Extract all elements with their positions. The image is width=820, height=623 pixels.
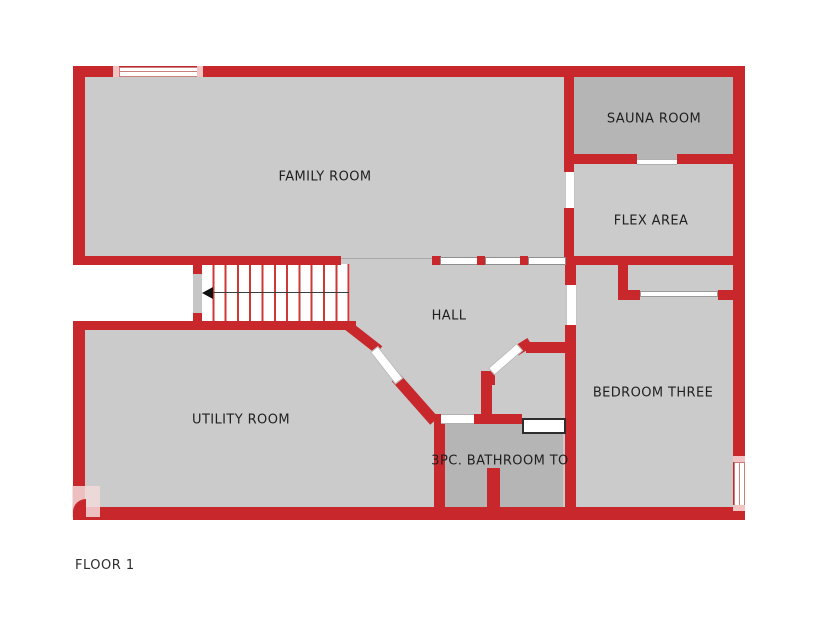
closet-rod-line <box>640 291 718 297</box>
door-family-flex <box>565 172 575 208</box>
railing-bar-1 <box>440 257 479 265</box>
door-bathroom <box>441 414 474 424</box>
stairs-direction-arrow-icon <box>202 287 213 299</box>
wall-bathroom-stub <box>487 468 500 508</box>
wall-closet-stub-right <box>718 290 733 300</box>
room-label-utility-room: UTILITY ROOM <box>192 413 290 428</box>
wall-wc-top <box>526 342 565 353</box>
floor-title: FLOOR 1 <box>75 558 135 573</box>
wall-bedroom-left-upper <box>565 256 576 285</box>
wall-exterior-bottom <box>73 507 745 520</box>
wall-flex-bottom <box>564 256 733 265</box>
window-top-cap-right <box>197 66 203 77</box>
door-bedroom <box>566 285 577 325</box>
room-label-family-room: FAMILY ROOM <box>279 170 372 185</box>
wall-bedroom-left-lower <box>565 325 576 508</box>
wall-wc-left <box>481 373 492 418</box>
room-label-hall: HALL <box>432 309 467 324</box>
room-label-flex-area: FLEX AREA <box>614 214 689 229</box>
window-right-cap-bottom <box>733 505 745 511</box>
wall-closet-partition <box>618 265 628 300</box>
wall-utility-top <box>73 321 356 330</box>
wall-exterior-left-upper <box>73 66 85 265</box>
window-familyroom-top <box>119 67 199 77</box>
hall-family-boundary-line <box>341 258 432 259</box>
stair-direction-line <box>211 292 349 293</box>
wall-family-flex-lower <box>564 208 574 256</box>
room-label-bedroom-three: BEDROOM THREE <box>593 386 713 401</box>
wall-exterior-right <box>733 66 745 520</box>
staircase <box>202 264 350 322</box>
wall-closet-elbow <box>628 290 640 300</box>
wall-stair-stub-top <box>193 265 202 274</box>
railing-bar-2 <box>485 257 522 265</box>
railing-post-2 <box>477 256 485 265</box>
floor-plan-canvas: FAMILY ROOM SAUNA ROOM FLEX AREA HALL UT… <box>0 0 820 623</box>
door-sauna <box>637 159 677 165</box>
entry-opening <box>73 265 193 322</box>
window-bedroom-right <box>734 462 745 508</box>
bathroom-vanity <box>522 418 566 434</box>
railing-post-3 <box>520 256 528 265</box>
room-label-bathroom: 3PC. BATHROOM TO <box>431 454 568 469</box>
railing-bar-3 <box>528 257 566 265</box>
window-mullion-line <box>120 71 198 72</box>
room-label-sauna-room: SAUNA ROOM <box>607 112 701 127</box>
wall-familyroom-bottom <box>73 256 341 265</box>
window-mullion-line <box>739 463 740 507</box>
